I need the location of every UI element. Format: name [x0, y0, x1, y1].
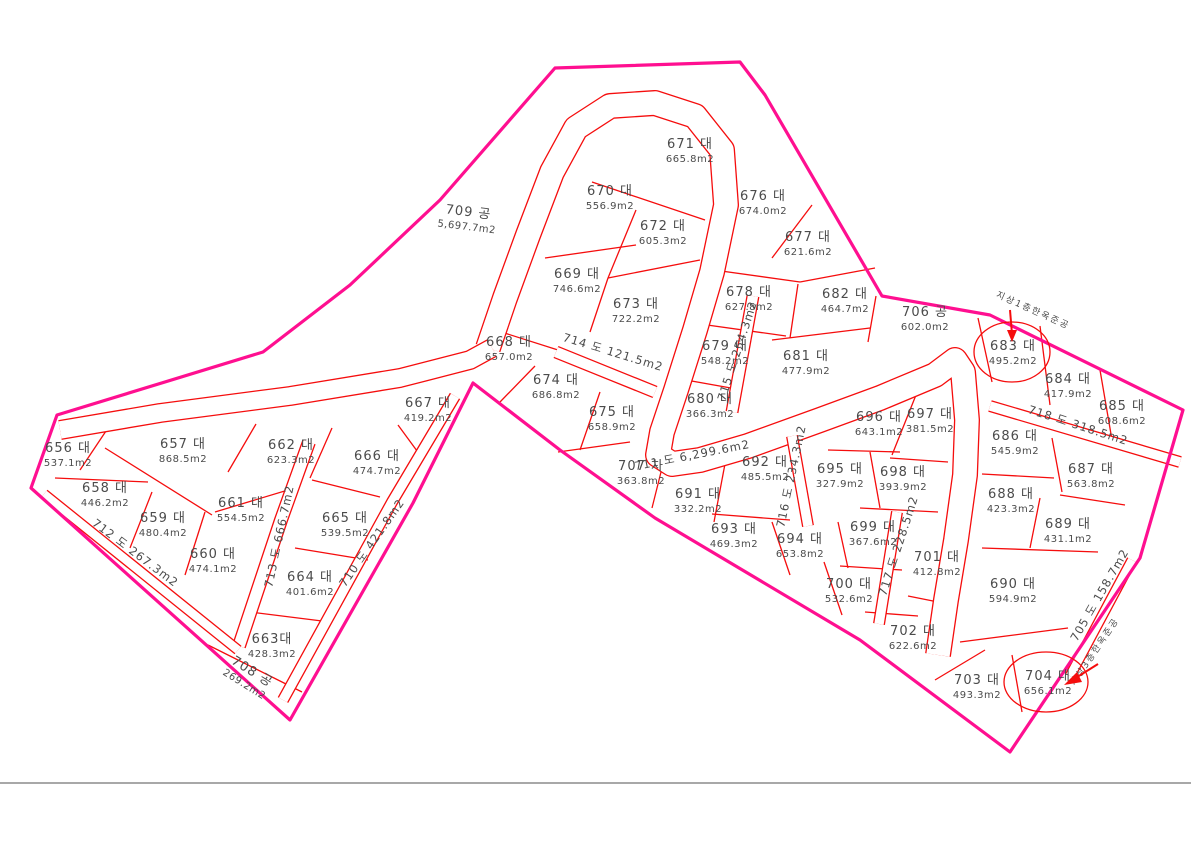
parcel-label-695: 695 대327.9m2 [816, 462, 864, 490]
parcel-label-676: 676 대674.0m2 [739, 189, 787, 217]
parcel-divider [714, 270, 800, 282]
parcel-divider [1052, 438, 1062, 492]
parcel-divider [960, 628, 1068, 642]
parcel-label-687: 687 대563.8m2 [1067, 462, 1115, 490]
parcel-label-668: 668 대657.0m2 [485, 335, 533, 363]
parcel-divider [838, 522, 848, 568]
parcel-divider [310, 428, 332, 478]
parcel-label-671: 671 대665.8m2 [666, 137, 714, 165]
parcel-label-685: 685 대608.6m2 [1098, 399, 1146, 427]
parcel-label-691: 691 대332.2m2 [674, 487, 722, 515]
parcel-divider [800, 268, 875, 282]
parcel-label-689: 689 대431.1m2 [1044, 517, 1092, 545]
parcel-label-661: 661 대554.5m2 [217, 496, 265, 524]
parcel-divider [868, 296, 876, 342]
parcel-label-673: 673 대722.2m2 [612, 297, 660, 325]
parcel-divider [558, 442, 630, 452]
parcel-divider [500, 366, 535, 402]
parcel-label-698: 698 대393.9m2 [879, 465, 927, 493]
parcel-label-694: 694 대653.8m2 [776, 532, 824, 560]
parcel-label-664: 664 대401.6m2 [286, 570, 334, 598]
parcel-label-701: 701 대412.8m2 [913, 550, 961, 578]
parcel-label-659: 659 대480.4m2 [139, 511, 187, 539]
parcel-label-688: 688 대423.3m2 [987, 487, 1035, 515]
parcel-label-666: 666 대474.7m2 [353, 449, 401, 477]
parcel-divider [860, 508, 938, 512]
parcel-label-667: 667 대419.2m2 [404, 396, 452, 424]
parcel-label-700: 700 대532.6m2 [825, 577, 873, 605]
parcel-divider [608, 260, 700, 278]
parcel-label-665: 665 대539.5m2 [321, 511, 369, 539]
parcel-label-699: 699 대367.6m2 [849, 520, 897, 548]
parcel-label-675: 675 대658.9m2 [588, 405, 636, 433]
parcel-label-686: 686 대545.9m2 [991, 429, 1039, 457]
parcel-divider [982, 474, 1054, 478]
parcel-label-697: 697 대381.5m2 [906, 407, 954, 435]
parcel-divider [228, 424, 256, 472]
parcel-label-682: 682 대464.7m2 [821, 287, 869, 315]
parcel-label-704: 704 대656.1m2 [1024, 669, 1072, 697]
parcel-label-692: 692 대485.5m2 [741, 455, 789, 483]
parcel-divider [608, 210, 636, 278]
parcel-label-709: 709 공5,697.7m2 [437, 202, 499, 237]
parcel-divider [580, 392, 600, 450]
cadastral-map: 656 대537.1m2657 대868.5m2658 대446.2m2659 … [0, 0, 1191, 842]
parcel-divider [790, 284, 798, 338]
parcel-divider [545, 245, 636, 258]
parcel-label-696: 696 대643.1m2 [855, 410, 903, 438]
parcel-label-706: 706 공602.0m2 [901, 305, 949, 333]
parcel-label-683: 683 대495.2m2 [989, 339, 1037, 367]
parcel-label-672: 672 대605.3m2 [639, 219, 687, 247]
parcel-label-702: 702 대622.6m2 [889, 624, 937, 652]
parcel-divider [890, 458, 948, 462]
parcel-label-670: 670 대556.9m2 [586, 184, 634, 212]
parcel-label-708: 708 공269.2m2 [221, 653, 277, 702]
parcel-label-656: 656 대537.1m2 [44, 441, 92, 469]
road-label-714: 714 도 121.5m2 [561, 330, 665, 374]
parcel-divider [828, 450, 900, 452]
parcel-label-662: 662 대623.3m2 [267, 438, 315, 466]
parcel-divider [772, 328, 870, 340]
parcel-divider [1060, 495, 1125, 505]
parcel-divider [312, 480, 380, 497]
parcel-label-681: 681 대477.9m2 [782, 349, 830, 377]
parcel-label-658: 658 대446.2m2 [81, 481, 129, 509]
parcel-divider [982, 548, 1098, 552]
annotation-1: 지상1층한옥준공 [994, 289, 1071, 331]
parcel-divider [870, 452, 880, 508]
parcel-divider [865, 612, 918, 616]
parcel-label-703: 703 대493.3m2 [953, 673, 1001, 701]
parcel-label-657: 657 대868.5m2 [159, 437, 207, 465]
parcel-label-693: 693 대469.3m2 [710, 522, 758, 550]
parcel-label-669: 669 대746.6m2 [553, 267, 601, 295]
parcel-label-677: 677 대621.6m2 [784, 230, 832, 258]
parcel-label-663: 663대428.3m2 [248, 632, 296, 660]
cadastral-map-svg: 656 대537.1m2657 대868.5m2658 대446.2m2659 … [0, 0, 1191, 842]
parcel-divider [250, 612, 330, 622]
parcel-label-660: 660 대474.1m2 [189, 547, 237, 575]
parcel-labels: 656 대537.1m2657 대868.5m2658 대446.2m2659 … [44, 137, 1146, 702]
parcel-label-674: 674 대686.8m2 [532, 373, 580, 401]
parcel-label-690: 690 대594.9m2 [989, 577, 1037, 605]
parcel-label-684: 684 대417.9m2 [1044, 372, 1092, 400]
